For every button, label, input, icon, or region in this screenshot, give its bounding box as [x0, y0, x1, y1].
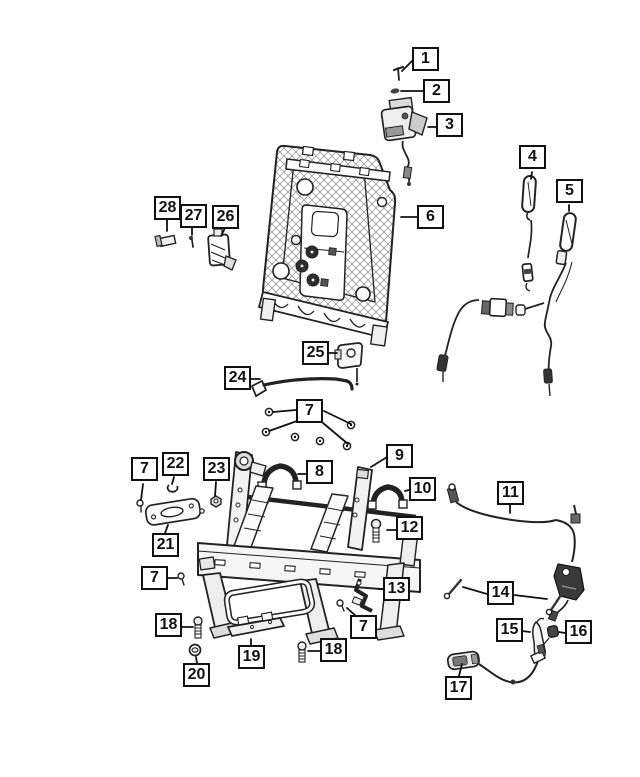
screw-7-left-illustration — [137, 500, 143, 512]
callout-17[interactable]: 17 — [445, 676, 472, 700]
seatback-frame-illustration — [259, 146, 395, 346]
callout-25[interactable]: 25 — [302, 341, 329, 365]
callout-6[interactable]: 6 — [417, 205, 444, 229]
screw-7-bottomleft-illustration — [178, 573, 184, 585]
plate-21-illustration — [145, 498, 201, 526]
callout-9[interactable]: 9 — [386, 444, 413, 468]
callout-7-bottomleft[interactable]: 7 — [141, 566, 168, 590]
bolt-28-illustration — [155, 235, 176, 246]
screw-27-illustration — [189, 236, 193, 247]
release-cable-4-illustration — [522, 176, 536, 291]
bolt-12-illustration — [372, 520, 381, 543]
connector-cable-illustration — [437, 299, 544, 382]
callout-23[interactable]: 23 — [203, 457, 230, 481]
pivot-bracket-10-illustration — [368, 487, 407, 509]
callout-13[interactable]: 13 — [383, 577, 410, 601]
callout-26[interactable]: 26 — [212, 205, 239, 229]
callout-11[interactable]: 11 — [497, 481, 524, 505]
screw-14-left-illustration — [444, 580, 461, 599]
callout-10[interactable]: 10 — [409, 477, 436, 501]
callout-20[interactable]: 20 — [183, 663, 210, 687]
callout-2[interactable]: 2 — [423, 79, 450, 103]
bolt-18-left-illustration — [194, 617, 202, 638]
callout-5[interactable]: 5 — [556, 179, 583, 203]
clip-22-illustration — [168, 485, 178, 492]
callout-18-right[interactable]: 18 — [320, 638, 347, 662]
bolt-18-right-illustration — [298, 642, 306, 662]
callout-18-left[interactable]: 18 — [155, 613, 182, 637]
callout-24[interactable]: 24 — [224, 366, 251, 390]
callout-22[interactable]: 22 — [162, 452, 189, 476]
nut-23-illustration — [200, 496, 221, 513]
callout-1[interactable]: 1 — [412, 47, 439, 71]
callout-15[interactable]: 15 — [496, 618, 523, 642]
grommet-16-illustration — [544, 625, 559, 644]
callout-16[interactable]: 16 — [565, 620, 592, 644]
callout-28[interactable]: 28 — [154, 196, 181, 220]
screw-7-bottommid-illustration — [337, 600, 344, 611]
callout-7-bottommid[interactable]: 7 — [350, 615, 377, 639]
callout-14[interactable]: 14 — [487, 581, 514, 605]
parts-diagram-page: 1 2 3 4 5 6 28 27 26 25 24 7 22 7 23 9 8… — [0, 0, 640, 777]
callout-21[interactable]: 21 — [152, 533, 179, 557]
callout-8[interactable]: 8 — [306, 460, 333, 484]
callout-12[interactable]: 12 — [396, 516, 423, 540]
screw-1-illustration — [394, 67, 403, 80]
nut-20-illustration — [190, 645, 201, 656]
callout-3[interactable]: 3 — [436, 113, 463, 137]
rod-24-illustration — [252, 379, 352, 396]
fastener-2-illustration — [390, 88, 400, 94]
callout-4[interactable]: 4 — [519, 145, 546, 169]
callout-7-top[interactable]: 7 — [296, 399, 323, 423]
callout-19[interactable]: 19 — [238, 645, 265, 669]
release-cable-5-illustration — [544, 212, 577, 396]
callout-7-left[interactable]: 7 — [131, 457, 158, 481]
callout-27[interactable]: 27 — [180, 204, 207, 228]
